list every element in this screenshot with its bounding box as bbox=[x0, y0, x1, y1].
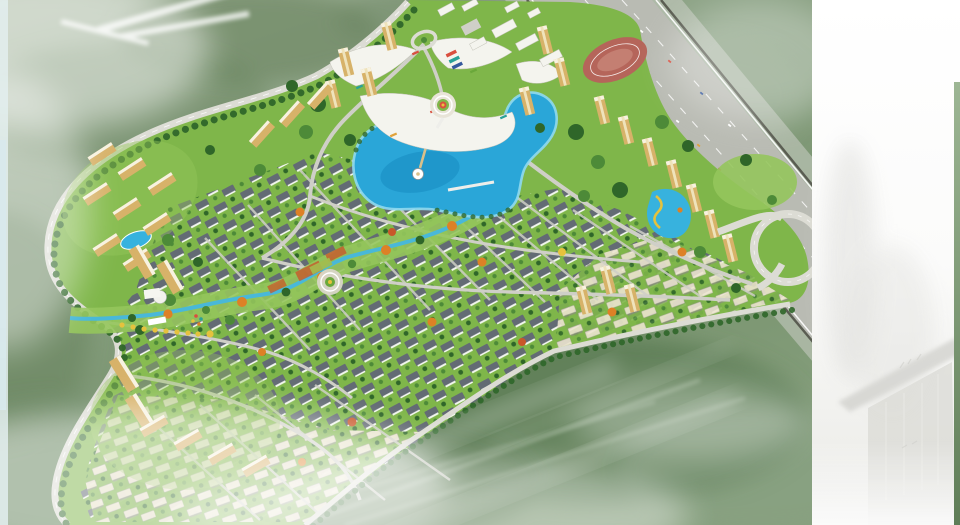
panel-bottom-fade bbox=[812, 440, 960, 525]
garden-plaza-west bbox=[317, 269, 343, 295]
aerial-rendering-canvas bbox=[0, 0, 960, 525]
left-edge-strip-blue bbox=[0, 140, 6, 410]
central-plaza bbox=[430, 92, 456, 118]
masterplan-rendering bbox=[0, 0, 960, 525]
white-fade-panel bbox=[812, 0, 960, 525]
green-edge-sliver bbox=[954, 82, 960, 525]
